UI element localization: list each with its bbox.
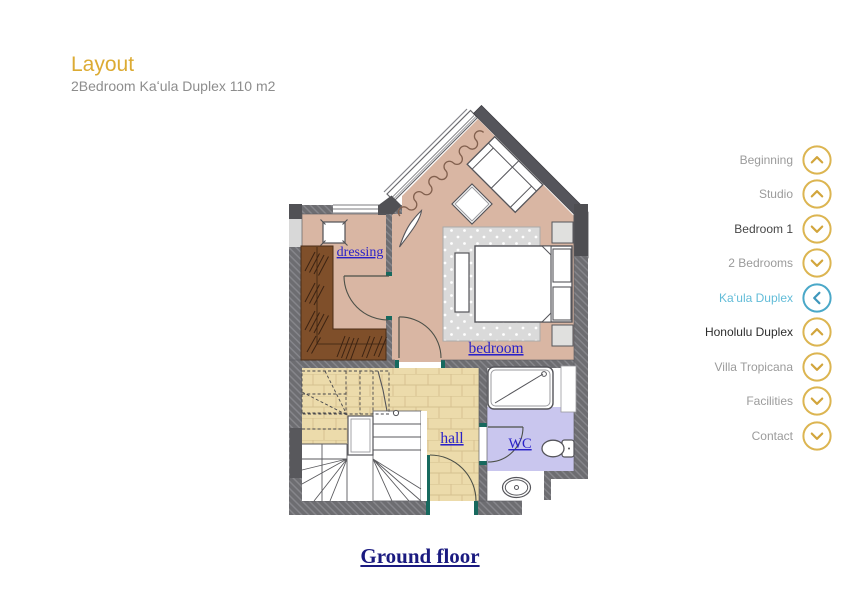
svg-text:dressing: dressing xyxy=(337,245,384,260)
svg-text:WC: WC xyxy=(508,436,531,452)
svg-text:bedroom: bedroom xyxy=(468,340,523,357)
svg-text:hall: hall xyxy=(440,430,463,447)
